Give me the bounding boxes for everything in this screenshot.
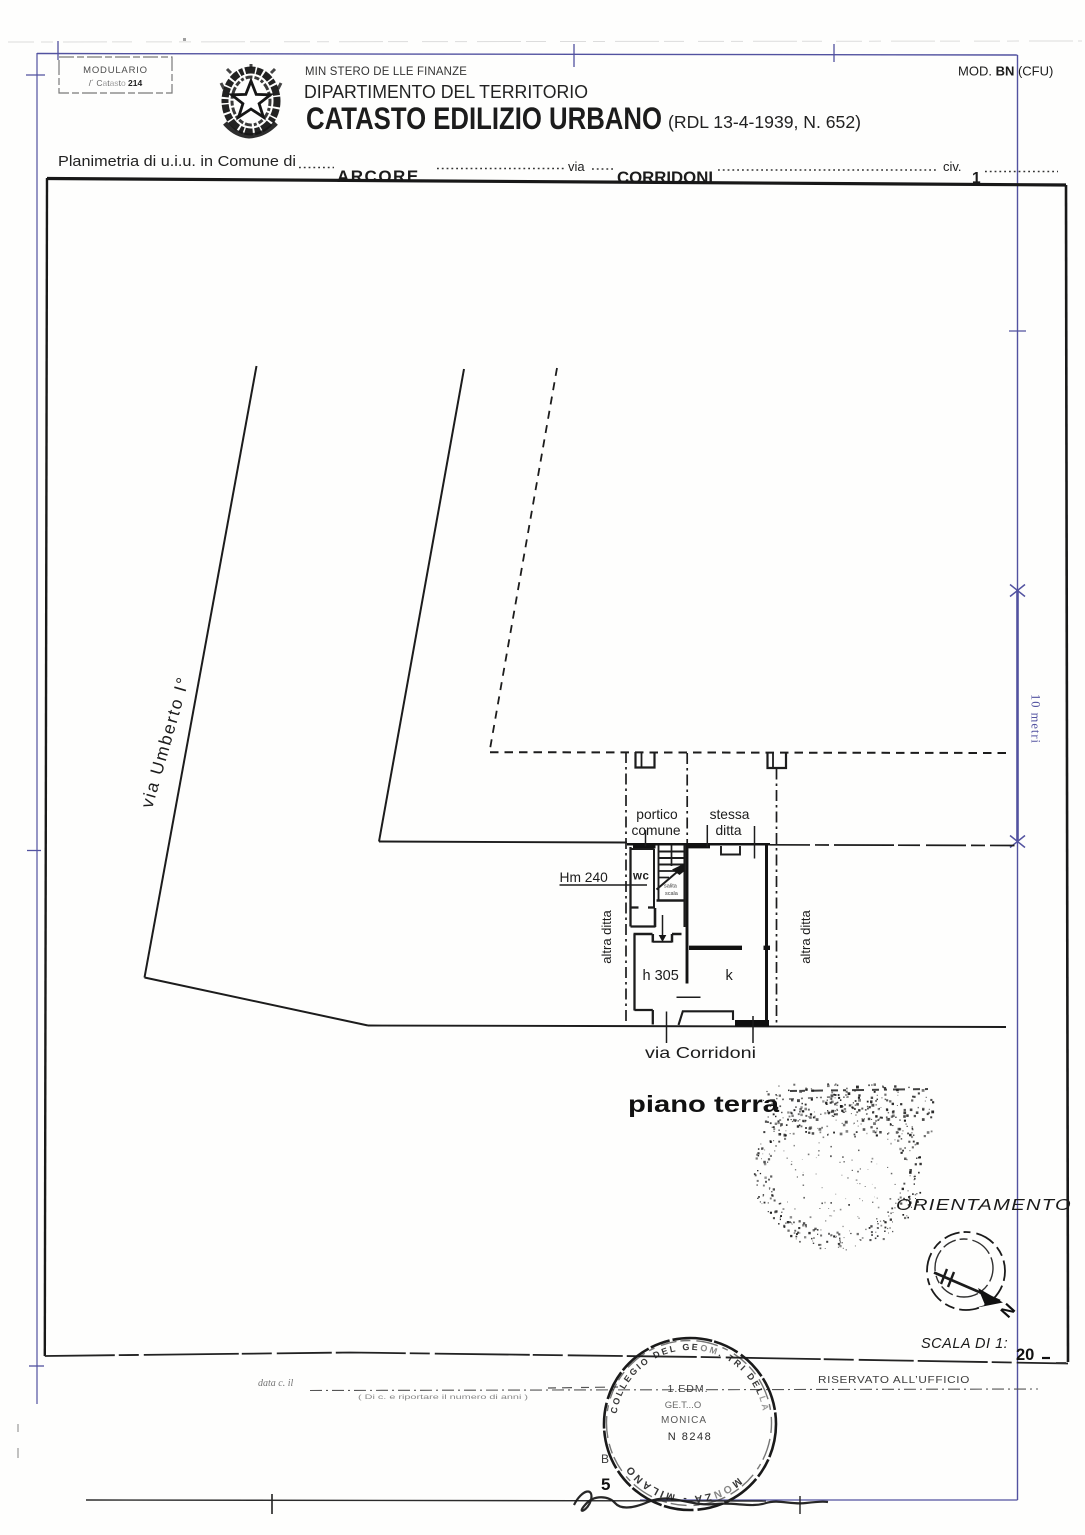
svg-text:altra ditta: altra ditta: [599, 909, 614, 963]
svg-text:piano terra: piano terra: [628, 1091, 780, 1117]
svg-text:ORIENTAMENTO: ORIENTAMENTO: [896, 1197, 1072, 1214]
svg-text:MIN STERO DE LLE FINANZE: MIN STERO DE LLE FINANZE: [305, 64, 467, 78]
svg-text:Hm 240: Hm 240: [560, 870, 609, 885]
svg-text:GE.T...O: GE.T...O: [665, 1400, 701, 1411]
svg-text:civ.: civ.: [943, 159, 962, 174]
svg-text:k: k: [726, 968, 734, 984]
svg-text:/´ Catasto 214: /´ Catasto 214: [89, 78, 143, 88]
svg-text:5: 5: [601, 1475, 610, 1494]
svg-text:wc: wc: [632, 871, 649, 883]
svg-text:stessa: stessa: [710, 807, 750, 822]
svg-text:CORRIDONI: CORRIDONI: [617, 169, 713, 187]
svg-text:comune: comune: [631, 823, 680, 838]
svg-text:MODULARIO: MODULARIO: [83, 65, 148, 76]
svg-text:20: 20: [1016, 1346, 1034, 1364]
svg-text:RISERVATO ALL’UFFICIO: RISERVATO ALL’UFFICIO: [818, 1374, 970, 1386]
svg-text:SCALA DI 1:: SCALA DI 1:: [921, 1336, 1008, 1352]
svg-text:DIPARTIMENTO DEL TERRITORIO: DIPARTIMENTO DEL TERRITORIO: [304, 81, 588, 102]
svg-text:h 305: h 305: [643, 968, 679, 984]
svg-text:B: B: [601, 1452, 609, 1466]
svg-text:portico: portico: [636, 807, 678, 822]
svg-text:ditta: ditta: [715, 823, 741, 838]
svg-text:scala: scala: [665, 891, 679, 897]
svg-text:CATASTO EDILIZIO URBANO: CATASTO EDILIZIO URBANO: [306, 100, 662, 136]
svg-text:(RDL 13-4-1939, N. 652): (RDL 13-4-1939, N. 652): [668, 112, 861, 132]
svg-text:ARCORE: ARCORE: [337, 167, 420, 186]
svg-text:altra ditta: altra ditta: [798, 909, 813, 963]
svg-text:via: via: [568, 159, 585, 174]
svg-text:salita: salita: [664, 884, 678, 890]
svg-text:via Corridoni: via Corridoni: [645, 1045, 756, 1062]
svg-text:MOD. BN (CFU): MOD. BN (CFU): [958, 64, 1053, 79]
svg-text:( Di c. e riportare il n: ( Di c. e riportare il numero di anni ): [358, 1394, 528, 1401]
svg-text:N 8248: N 8248: [668, 1431, 712, 1443]
svg-text:data c. il: data c. il: [258, 1378, 293, 1389]
svg-text:MONICA: MONICA: [661, 1415, 707, 1426]
svg-text:Planimetria di u.i.u. in C: Planimetria di u.i.u. in Comune di: [58, 153, 296, 170]
svg-text:10 metri: 10 metri: [1029, 694, 1043, 744]
svg-text:1.EDM.: 1.EDM.: [667, 1383, 708, 1395]
